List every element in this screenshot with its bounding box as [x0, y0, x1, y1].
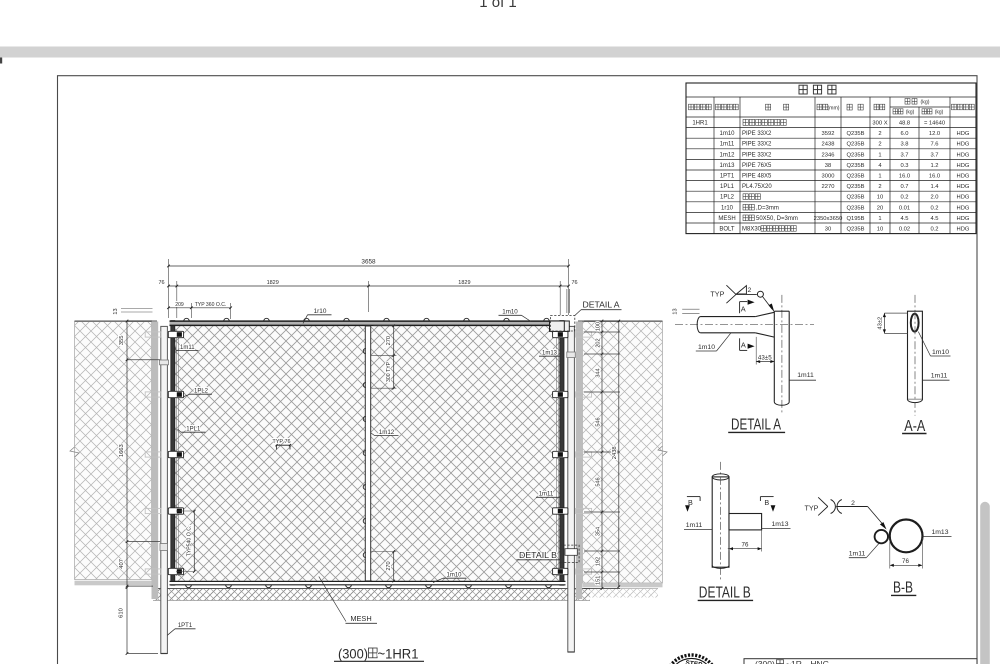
svg-text:(300): (300)	[755, 659, 775, 664]
svg-text:1: 1	[878, 174, 881, 180]
svg-text:Q235B: Q235B	[846, 184, 864, 190]
svg-text:(300): (300)	[338, 646, 368, 662]
svg-text:A: A	[741, 340, 746, 349]
svg-text:2: 2	[851, 500, 855, 507]
svg-text:TYP540 O.C.: TYP540 O.C.	[186, 526, 192, 557]
svg-text:6.0: 6.0	[900, 131, 908, 137]
svg-text:1.2: 1.2	[930, 163, 938, 169]
svg-text:13: 13	[673, 308, 679, 314]
svg-text:1m13: 1m13	[542, 351, 558, 357]
svg-text:300 X: 300 X	[872, 121, 887, 127]
svg-text:TYP 76: TYP 76	[272, 439, 290, 445]
svg-text:Q235B: Q235B	[846, 163, 864, 169]
svg-text:Q235B: Q235B	[846, 131, 864, 137]
svg-text:38: 38	[825, 163, 831, 169]
svg-text:344: 344	[595, 368, 601, 377]
svg-text:1m10: 1m10	[719, 131, 735, 137]
svg-text:270: 270	[386, 336, 392, 345]
svg-text:2346: 2346	[822, 152, 835, 158]
svg-text:TYP 360 O.C.: TYP 360 O.C.	[195, 302, 227, 308]
svg-text:(kg): (kg)	[935, 110, 944, 116]
svg-text:48.8: 48.8	[899, 121, 910, 127]
svg-text:1PL1: 1PL1	[186, 426, 201, 432]
svg-text:TYP: TYP	[710, 289, 724, 298]
svg-text:610: 610	[119, 608, 125, 618]
svg-text:1r10: 1r10	[721, 205, 734, 211]
svg-text:HDG: HDG	[957, 152, 970, 158]
svg-text:16.0: 16.0	[899, 174, 910, 180]
svg-text:10: 10	[877, 227, 883, 233]
svg-text:1: 1	[878, 216, 881, 222]
svg-text:270: 270	[386, 561, 392, 570]
svg-text:1m11: 1m11	[180, 345, 195, 351]
svg-text:0.2: 0.2	[930, 205, 938, 211]
svg-text:MESH: MESH	[350, 614, 371, 623]
svg-text:(mm): (mm)	[827, 105, 839, 111]
svg-text:209: 209	[175, 302, 184, 308]
svg-text:407: 407	[119, 559, 125, 569]
svg-text:4.5: 4.5	[930, 216, 938, 222]
svg-text:300 TYP: 300 TYP	[386, 361, 392, 382]
svg-text:2: 2	[878, 184, 881, 190]
svg-text:7.6: 7.6	[930, 142, 938, 148]
svg-text:151: 151	[595, 576, 601, 585]
svg-text:3658: 3658	[361, 258, 376, 265]
svg-text:3.7: 3.7	[930, 152, 938, 158]
svg-text:HDG: HDG	[957, 205, 970, 211]
svg-text:(kg): (kg)	[906, 110, 915, 116]
svg-text:A-A: A-A	[904, 418, 925, 435]
svg-text:1m10: 1m10	[698, 344, 715, 351]
svg-text:1m10: 1m10	[502, 309, 518, 316]
svg-text:PIPE 48X5: PIPE 48X5	[742, 174, 772, 180]
svg-text:20: 20	[877, 205, 883, 211]
svg-text:2438: 2438	[612, 446, 618, 459]
svg-text:TYP: TYP	[805, 503, 819, 512]
svg-text:30: 30	[825, 227, 831, 233]
svg-text:HDG: HDG	[957, 216, 970, 222]
svg-text:3000: 3000	[822, 174, 835, 180]
svg-text:43±2: 43±2	[878, 317, 884, 330]
svg-text:2438: 2438	[822, 142, 835, 148]
svg-text:PIPE 33X2: PIPE 33X2	[742, 142, 772, 148]
svg-text:192: 192	[595, 557, 601, 566]
svg-text:1 of 1: 1 of 1	[479, 0, 517, 11]
svg-text:1m11: 1m11	[720, 142, 735, 148]
svg-text:76: 76	[158, 280, 164, 286]
svg-text:1663: 1663	[119, 444, 125, 457]
svg-text:HDG: HDG	[957, 184, 970, 190]
svg-text:202: 202	[595, 338, 601, 347]
svg-text:2350x3650: 2350x3650	[814, 216, 843, 222]
svg-text:50X50, D=3mm: 50X50, D=3mm	[756, 216, 798, 222]
svg-text:PIPE 33X2: PIPE 33X2	[742, 152, 772, 158]
svg-text:1m11: 1m11	[931, 373, 948, 380]
svg-text:354: 354	[595, 527, 601, 536]
svg-text:1PL2: 1PL2	[194, 388, 209, 394]
svg-text:1m11: 1m11	[539, 492, 554, 498]
svg-text:0.3: 0.3	[900, 163, 908, 169]
svg-text:76: 76	[571, 280, 577, 286]
svg-text:HDG: HDG	[957, 227, 970, 233]
svg-text:PIPE 76X5: PIPE 76X5	[742, 163, 772, 169]
svg-text:Q235B: Q235B	[846, 205, 864, 211]
svg-text:~1R→HNG: ~1R→HNG	[786, 659, 829, 664]
svg-text:1m12: 1m12	[379, 429, 395, 436]
svg-text:16.0: 16.0	[929, 174, 940, 180]
svg-text:B: B	[764, 498, 769, 507]
svg-text:546: 546	[595, 477, 601, 486]
svg-text:1m10: 1m10	[932, 349, 949, 356]
svg-text:3.7: 3.7	[900, 152, 908, 158]
svg-text:1m11: 1m11	[686, 522, 703, 529]
svg-text:546: 546	[595, 417, 601, 426]
svg-text:1HR1: 1HR1	[692, 121, 708, 127]
svg-text:1PL2: 1PL2	[720, 195, 735, 201]
svg-text:1m11: 1m11	[797, 372, 814, 379]
svg-text:HDG: HDG	[957, 163, 970, 169]
svg-text:HDG: HDG	[957, 142, 970, 148]
svg-text:DETAIL B: DETAIL B	[699, 585, 751, 602]
svg-text:M8X30: M8X30	[742, 227, 762, 233]
svg-text:B-B: B-B	[893, 580, 913, 597]
svg-text:12.0: 12.0	[929, 131, 940, 137]
svg-text:0.2: 0.2	[930, 227, 938, 233]
svg-text:Q235B: Q235B	[846, 227, 864, 233]
svg-text:HDG: HDG	[957, 174, 970, 180]
svg-text:1r10: 1r10	[314, 308, 327, 315]
svg-text:,D=3mm: ,D=3mm	[756, 205, 779, 211]
svg-text:2: 2	[878, 131, 881, 137]
svg-text:2.0: 2.0	[930, 195, 938, 201]
svg-text:3.8: 3.8	[900, 142, 908, 148]
svg-text:10: 10	[877, 195, 883, 201]
svg-text:43±5: 43±5	[758, 354, 772, 361]
svg-text:0.2: 0.2	[900, 195, 908, 201]
svg-text:Q235B: Q235B	[846, 142, 864, 148]
svg-text:HDG: HDG	[957, 131, 970, 137]
svg-text:~1HR1: ~1HR1	[378, 646, 419, 662]
svg-text:355: 355	[119, 336, 125, 346]
svg-text:2: 2	[878, 142, 881, 148]
svg-text:1m10: 1m10	[446, 572, 462, 578]
svg-text:DETAIL A: DETAIL A	[583, 300, 620, 310]
svg-text:13: 13	[113, 308, 119, 314]
svg-text:DETAIL B: DETAIL B	[519, 550, 557, 560]
svg-text:1m13: 1m13	[719, 163, 735, 169]
svg-text:1m11: 1m11	[849, 550, 866, 557]
svg-text:Q195B: Q195B	[846, 216, 864, 222]
svg-text:PL4.75X20: PL4.75X20	[742, 184, 772, 190]
svg-text:1PT1: 1PT1	[720, 174, 735, 180]
svg-text:Q235B: Q235B	[846, 174, 864, 180]
svg-text:100: 100	[595, 322, 601, 331]
svg-text:DETAIL A: DETAIL A	[731, 417, 781, 434]
svg-text:1m13: 1m13	[771, 521, 788, 528]
svg-text:Q235B: Q235B	[846, 152, 864, 158]
svg-text:PIPE 33X2: PIPE 33X2	[742, 131, 772, 137]
svg-text:= 14640: = 14640	[924, 121, 945, 127]
svg-text:0.7: 0.7	[900, 184, 908, 190]
svg-text:HDG: HDG	[957, 195, 970, 201]
svg-text:76: 76	[902, 558, 909, 565]
svg-text:Q235B: Q235B	[846, 195, 864, 201]
svg-text:2: 2	[748, 287, 752, 294]
svg-text:1m12: 1m12	[719, 152, 735, 158]
svg-text:4.5: 4.5	[900, 216, 908, 222]
svg-text:(kg): (kg)	[921, 100, 930, 106]
svg-text:A: A	[741, 304, 746, 313]
svg-text:2270: 2270	[822, 184, 835, 190]
svg-text:BOLT: BOLT	[719, 227, 735, 233]
svg-text:MESH: MESH	[718, 216, 735, 222]
svg-text:0.01: 0.01	[899, 205, 910, 211]
svg-text:1829: 1829	[458, 280, 470, 286]
svg-text:76: 76	[742, 541, 749, 548]
svg-text:1829: 1829	[267, 280, 279, 286]
svg-text:3592: 3592	[822, 131, 835, 137]
svg-text:1: 1	[878, 152, 881, 158]
svg-text:1PL1: 1PL1	[720, 184, 735, 190]
svg-text:0.02: 0.02	[899, 227, 910, 233]
svg-text:1PT1: 1PT1	[178, 623, 193, 629]
svg-text:1.4: 1.4	[930, 184, 939, 190]
svg-text:1m13: 1m13	[931, 529, 948, 536]
